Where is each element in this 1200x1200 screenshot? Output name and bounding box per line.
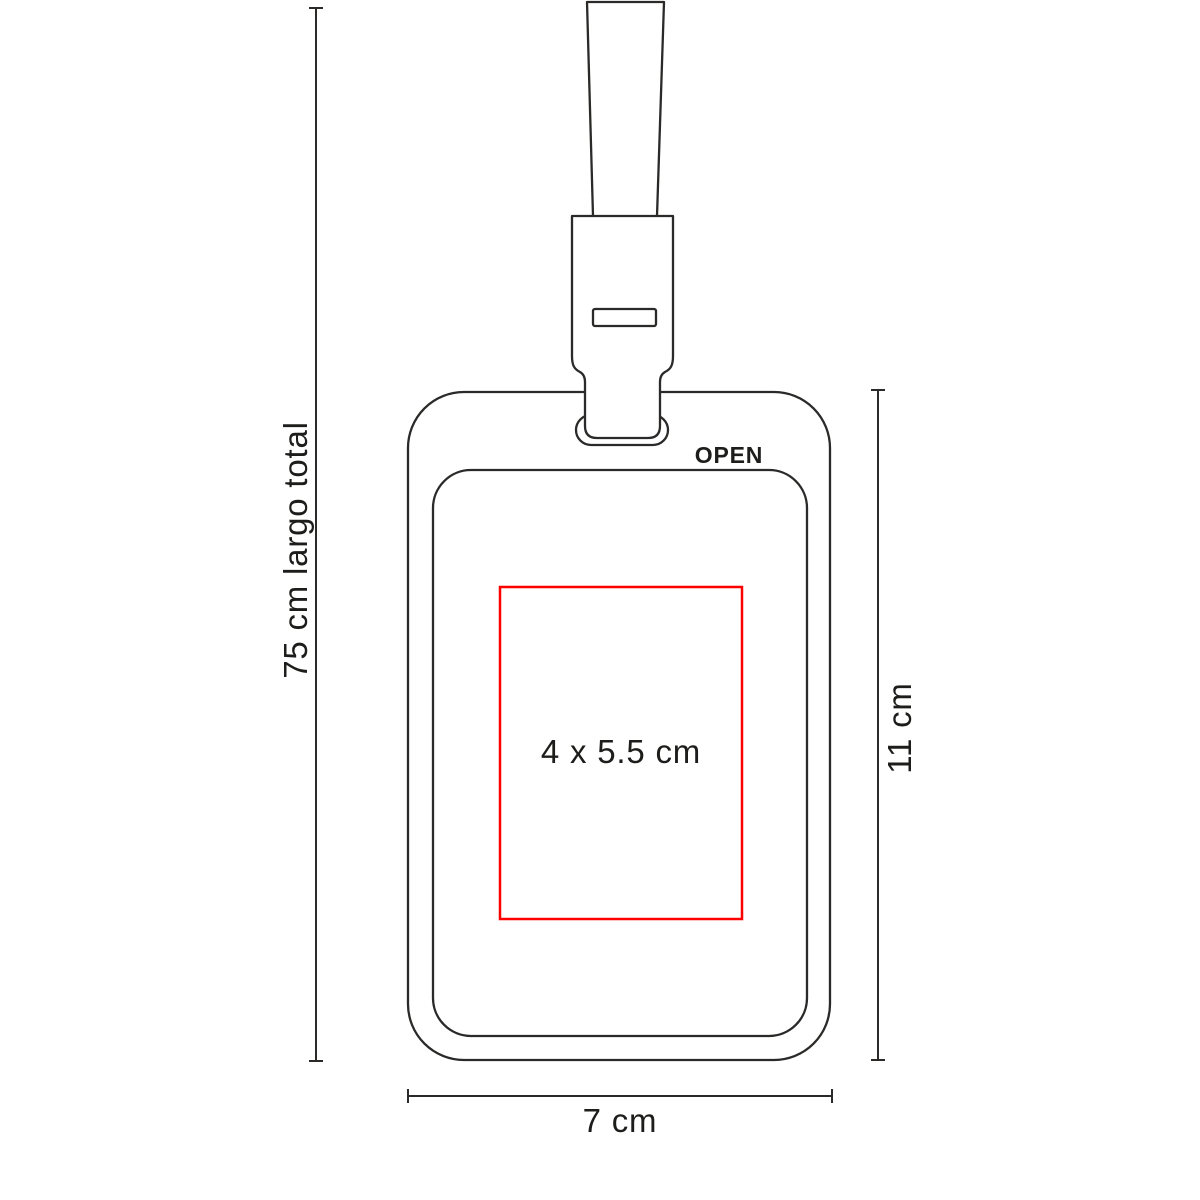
lanyard-strap [587, 2, 664, 216]
dimension-label-total-length: 75 cm largo total [277, 421, 314, 679]
clip-slit [593, 309, 656, 326]
print-area-label: 4 x 5.5 cm [541, 733, 701, 770]
badge-holder-dimension-diagram: 75 cm largo total 11 cm 7 cm 4 x 5.5 cm … [0, 0, 1200, 1200]
open-label: OPEN [695, 442, 763, 468]
diagram-canvas: 75 cm largo total 11 cm 7 cm 4 x 5.5 cm … [0, 0, 1200, 1200]
dimension-label-holder-width: 7 cm [583, 1102, 658, 1139]
dimension-line-holder-width [408, 1089, 832, 1103]
badge-holder-outer-body [408, 392, 830, 1060]
dimension-label-holder-height: 11 cm [881, 682, 918, 773]
